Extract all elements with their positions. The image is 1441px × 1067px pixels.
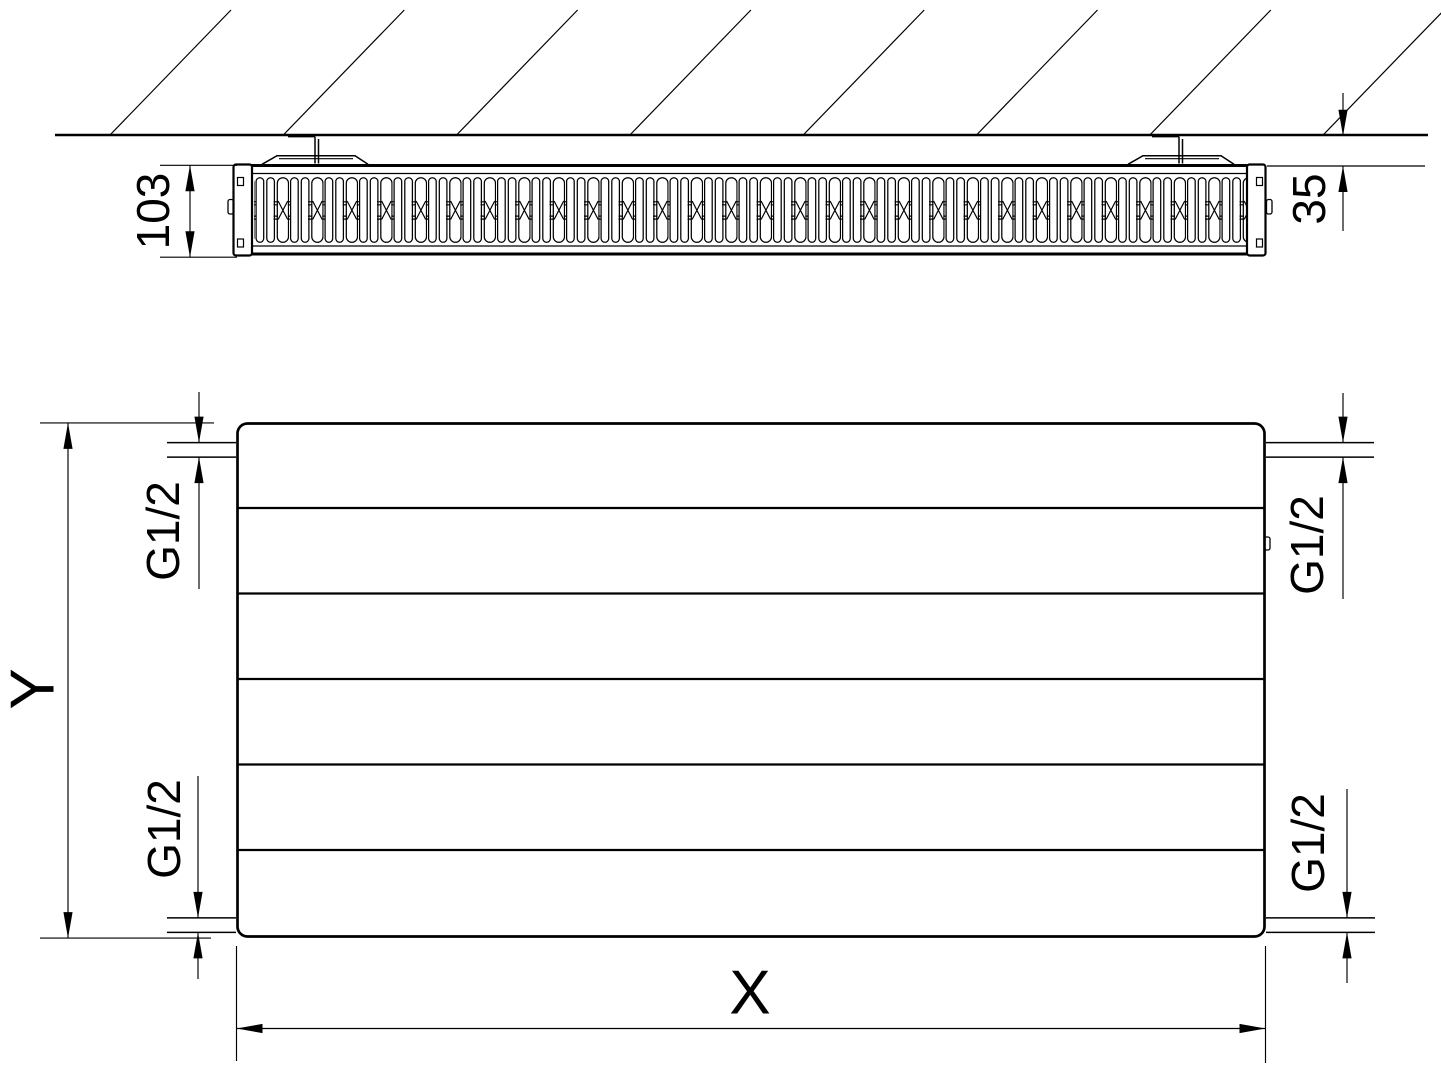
- dimension-width: X: [237, 946, 1266, 1063]
- bracket-clamp: [1128, 156, 1234, 165]
- arrowhead-down: [1338, 417, 1347, 443]
- connection-stub-top-right: [1266, 443, 1374, 458]
- arrowhead-up: [1338, 457, 1347, 483]
- left-end-cap: [234, 165, 253, 256]
- connection-thread-top-left: G1/2: [137, 392, 204, 589]
- radiator-top-view: [228, 137, 1272, 256]
- width-dimension-label: X: [729, 959, 770, 1028]
- connection-thread-label: G1/2: [138, 779, 190, 879]
- connection-stub-bottom-left: [167, 918, 236, 933]
- arrowhead-up: [185, 165, 194, 191]
- wall-section: [55, 10, 1441, 135]
- arrowhead-right: [1240, 1024, 1266, 1033]
- arrowhead-down: [194, 417, 203, 443]
- left-cap-notch-bottom: [238, 239, 244, 247]
- arrowhead-down: [193, 892, 202, 918]
- arrowhead-down: [185, 231, 194, 257]
- arrowhead-up: [1342, 932, 1351, 958]
- right-plug-boss: [1267, 200, 1273, 215]
- arrowhead-up: [194, 457, 203, 483]
- radiator-technical-drawing: 103 35: [0, 0, 1441, 1067]
- connection-stub-bottom-right: [1266, 918, 1375, 933]
- arrowhead-left: [237, 1024, 263, 1033]
- wall-clearance-dimension-label: 35: [1283, 173, 1335, 224]
- mounting-bracket-right: [1128, 137, 1234, 165]
- arrowhead-up: [63, 423, 72, 449]
- arrowhead-down: [1342, 892, 1351, 918]
- connection-thread-bottom-right: G1/2: [1282, 789, 1352, 983]
- depth-dimension-label: 103: [127, 173, 179, 250]
- connection-stub-top-left: [167, 443, 236, 458]
- convector-fins: [254, 177, 1247, 244]
- bracket-hook: [288, 137, 319, 164]
- wall-hatching: [110, 10, 1441, 135]
- dimension-wall-clearance: 35: [1267, 93, 1425, 231]
- connection-thread-bottom-left: G1/2: [138, 776, 203, 979]
- arrowhead-down: [63, 912, 72, 938]
- mounting-bracket-left: [262, 137, 368, 165]
- left-cap-notch-top: [238, 178, 244, 186]
- height-dimension-label: Y: [0, 668, 68, 709]
- arrowhead-up: [193, 932, 202, 958]
- right-cap-notch-bottom: [1257, 239, 1263, 247]
- right-cap-notch-top: [1257, 178, 1263, 186]
- dimension-depth: 103: [127, 165, 237, 257]
- bracket-hook: [1152, 137, 1183, 164]
- arrowhead-up: [1338, 166, 1347, 192]
- connection-thread-label: G1/2: [1282, 793, 1334, 893]
- connection-thread-label: G1/2: [1281, 495, 1333, 595]
- radiator-technical-drawing-sheet: 103 35: [0, 0, 1441, 1067]
- connection-thread-top-right: G1/2: [1281, 393, 1348, 599]
- arrowhead-down: [1338, 110, 1347, 136]
- radiator-front-view: [167, 424, 1375, 937]
- connection-thread-label: G1/2: [137, 481, 189, 581]
